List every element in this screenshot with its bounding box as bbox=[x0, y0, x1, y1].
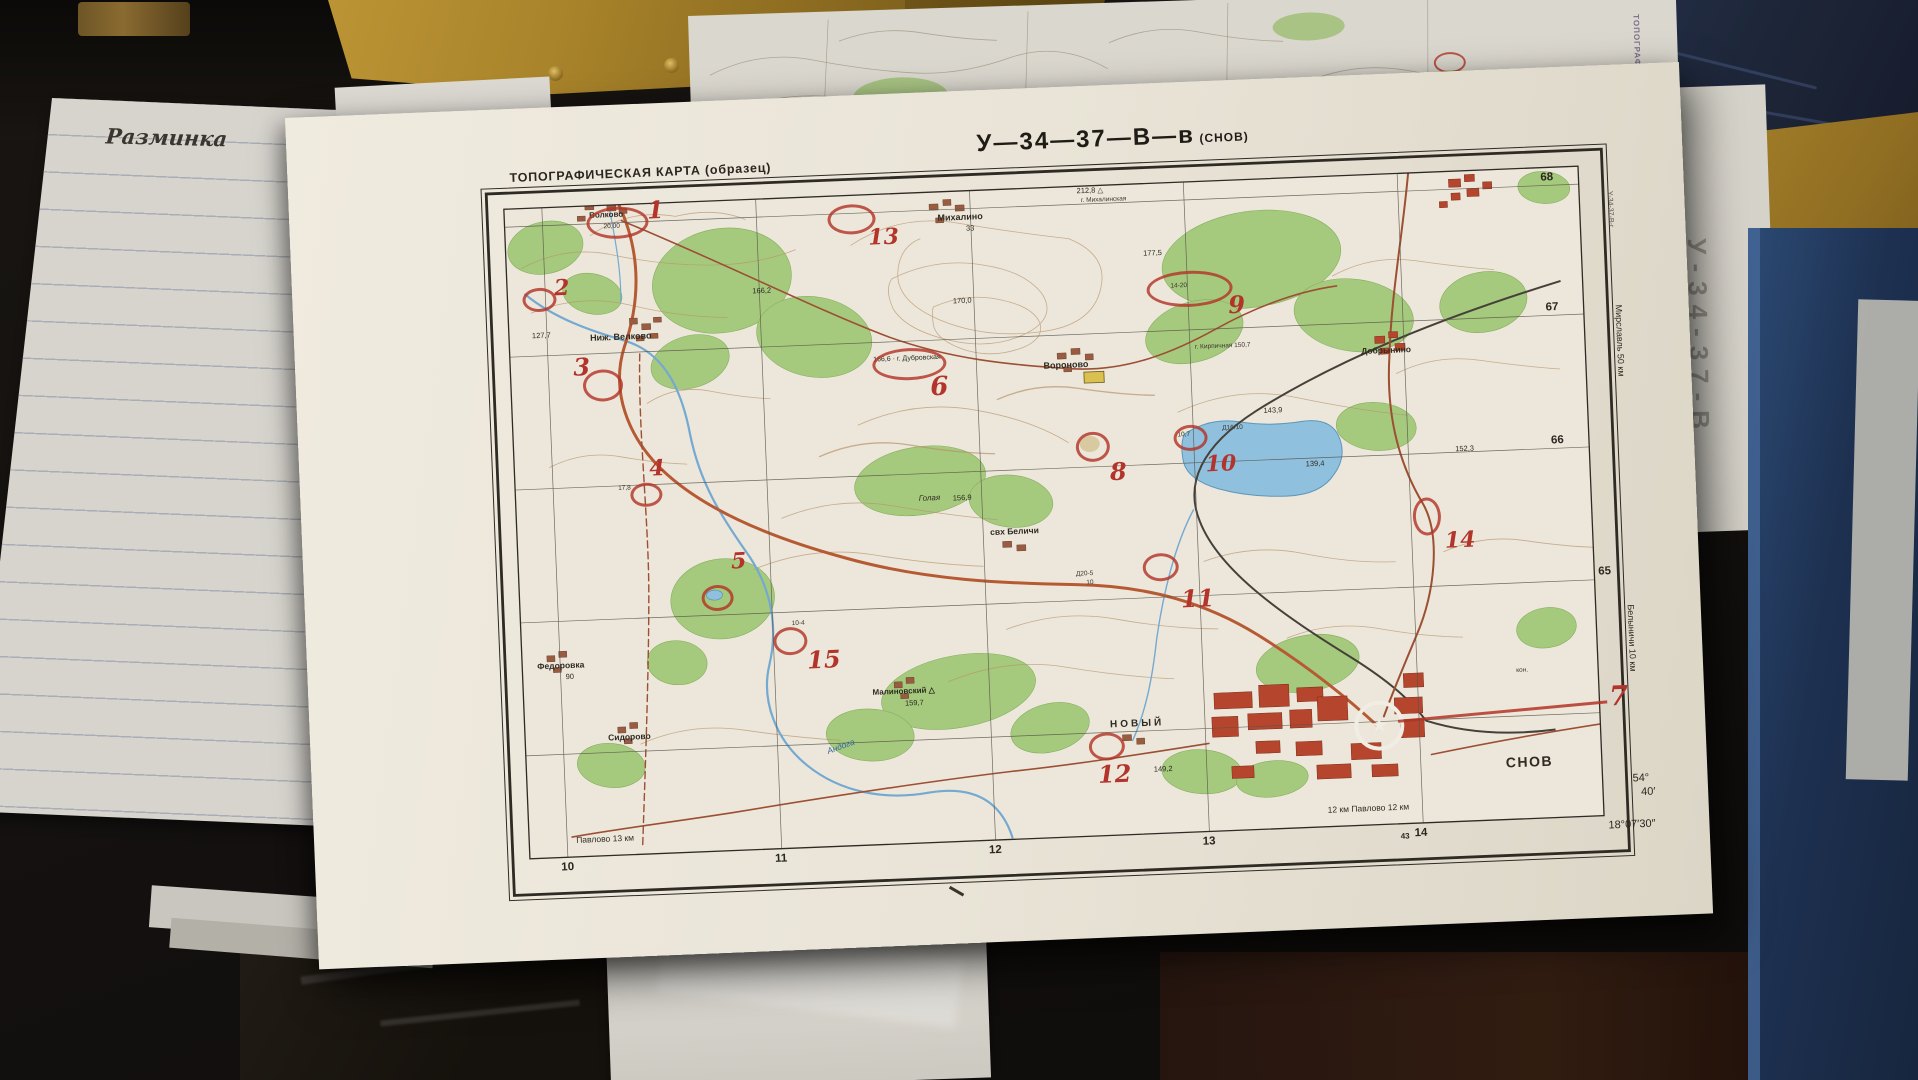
red-controls-layer: 123456789101112131415 bbox=[285, 62, 1713, 969]
exercise-heading: Разминка bbox=[105, 123, 229, 151]
control-circle-2 bbox=[522, 287, 557, 312]
control-number-11: 11 bbox=[1180, 583, 1215, 613]
control-number-4: 4 bbox=[649, 455, 665, 482]
control-number-7: 7 bbox=[1609, 681, 1629, 713]
bolt-icon bbox=[548, 66, 563, 81]
control-number-3: 3 bbox=[573, 352, 591, 382]
control-line-7 bbox=[1398, 700, 1607, 722]
bolt-icon bbox=[664, 58, 679, 73]
control-circle-12 bbox=[1088, 732, 1125, 761]
control-number-13: 13 bbox=[868, 223, 900, 250]
control-number-6: 6 bbox=[930, 372, 949, 403]
brass-hinge bbox=[78, 2, 190, 36]
control-circle-14 bbox=[1412, 497, 1442, 536]
photo-of-desk-with-map: Разминка У-34-37-В bbox=[0, 0, 1918, 1080]
topographic-map-sheet: У—34—37—В—в (СНОВ) ТОПОГРАФИЧЕСКАЯ КАРТА… bbox=[285, 62, 1713, 969]
binder-inner-page bbox=[1846, 299, 1918, 780]
control-circle-4 bbox=[630, 482, 663, 507]
control-circle-5 bbox=[701, 584, 734, 611]
control-number-10: 10 bbox=[1205, 450, 1237, 477]
control-number-9: 9 bbox=[1228, 290, 1246, 320]
control-number-15: 15 bbox=[807, 644, 842, 674]
control-circle-9 bbox=[1146, 269, 1233, 308]
control-number-2: 2 bbox=[554, 275, 570, 302]
desk-wood bbox=[1160, 952, 1800, 1080]
control-circle-15 bbox=[773, 626, 808, 655]
control-number-12: 12 bbox=[1097, 759, 1132, 789]
control-number-8: 8 bbox=[1109, 457, 1127, 487]
control-circle-10 bbox=[1173, 424, 1208, 451]
control-circle-11 bbox=[1142, 553, 1179, 582]
control-number-14: 14 bbox=[1444, 527, 1476, 554]
binder-edge bbox=[1748, 228, 1760, 1080]
control-number-5: 5 bbox=[731, 548, 747, 575]
control-circle-1 bbox=[586, 206, 649, 240]
control-number-1: 1 bbox=[646, 195, 664, 225]
control-circle-8 bbox=[1075, 431, 1110, 462]
